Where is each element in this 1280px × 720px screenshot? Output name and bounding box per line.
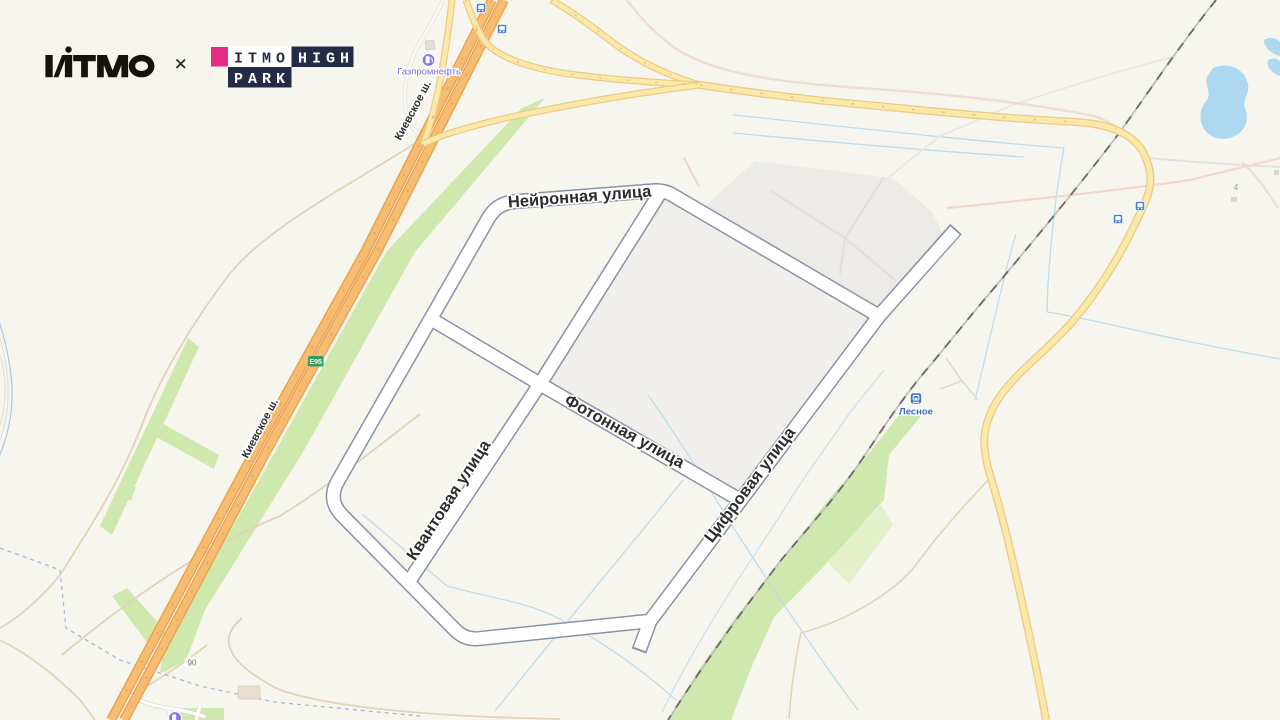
svg-text:4: 4 (1234, 183, 1239, 192)
svg-text:Газпромнефть: Газпромнефть (397, 67, 461, 78)
svg-text:PARK: PARK (234, 71, 290, 88)
svg-text:Лесное: Лесное (899, 407, 933, 418)
svg-text:HIGH: HIGH (298, 51, 354, 68)
svg-text:90: 90 (188, 659, 197, 668)
svg-text:ITMO: ITMO (234, 51, 290, 68)
